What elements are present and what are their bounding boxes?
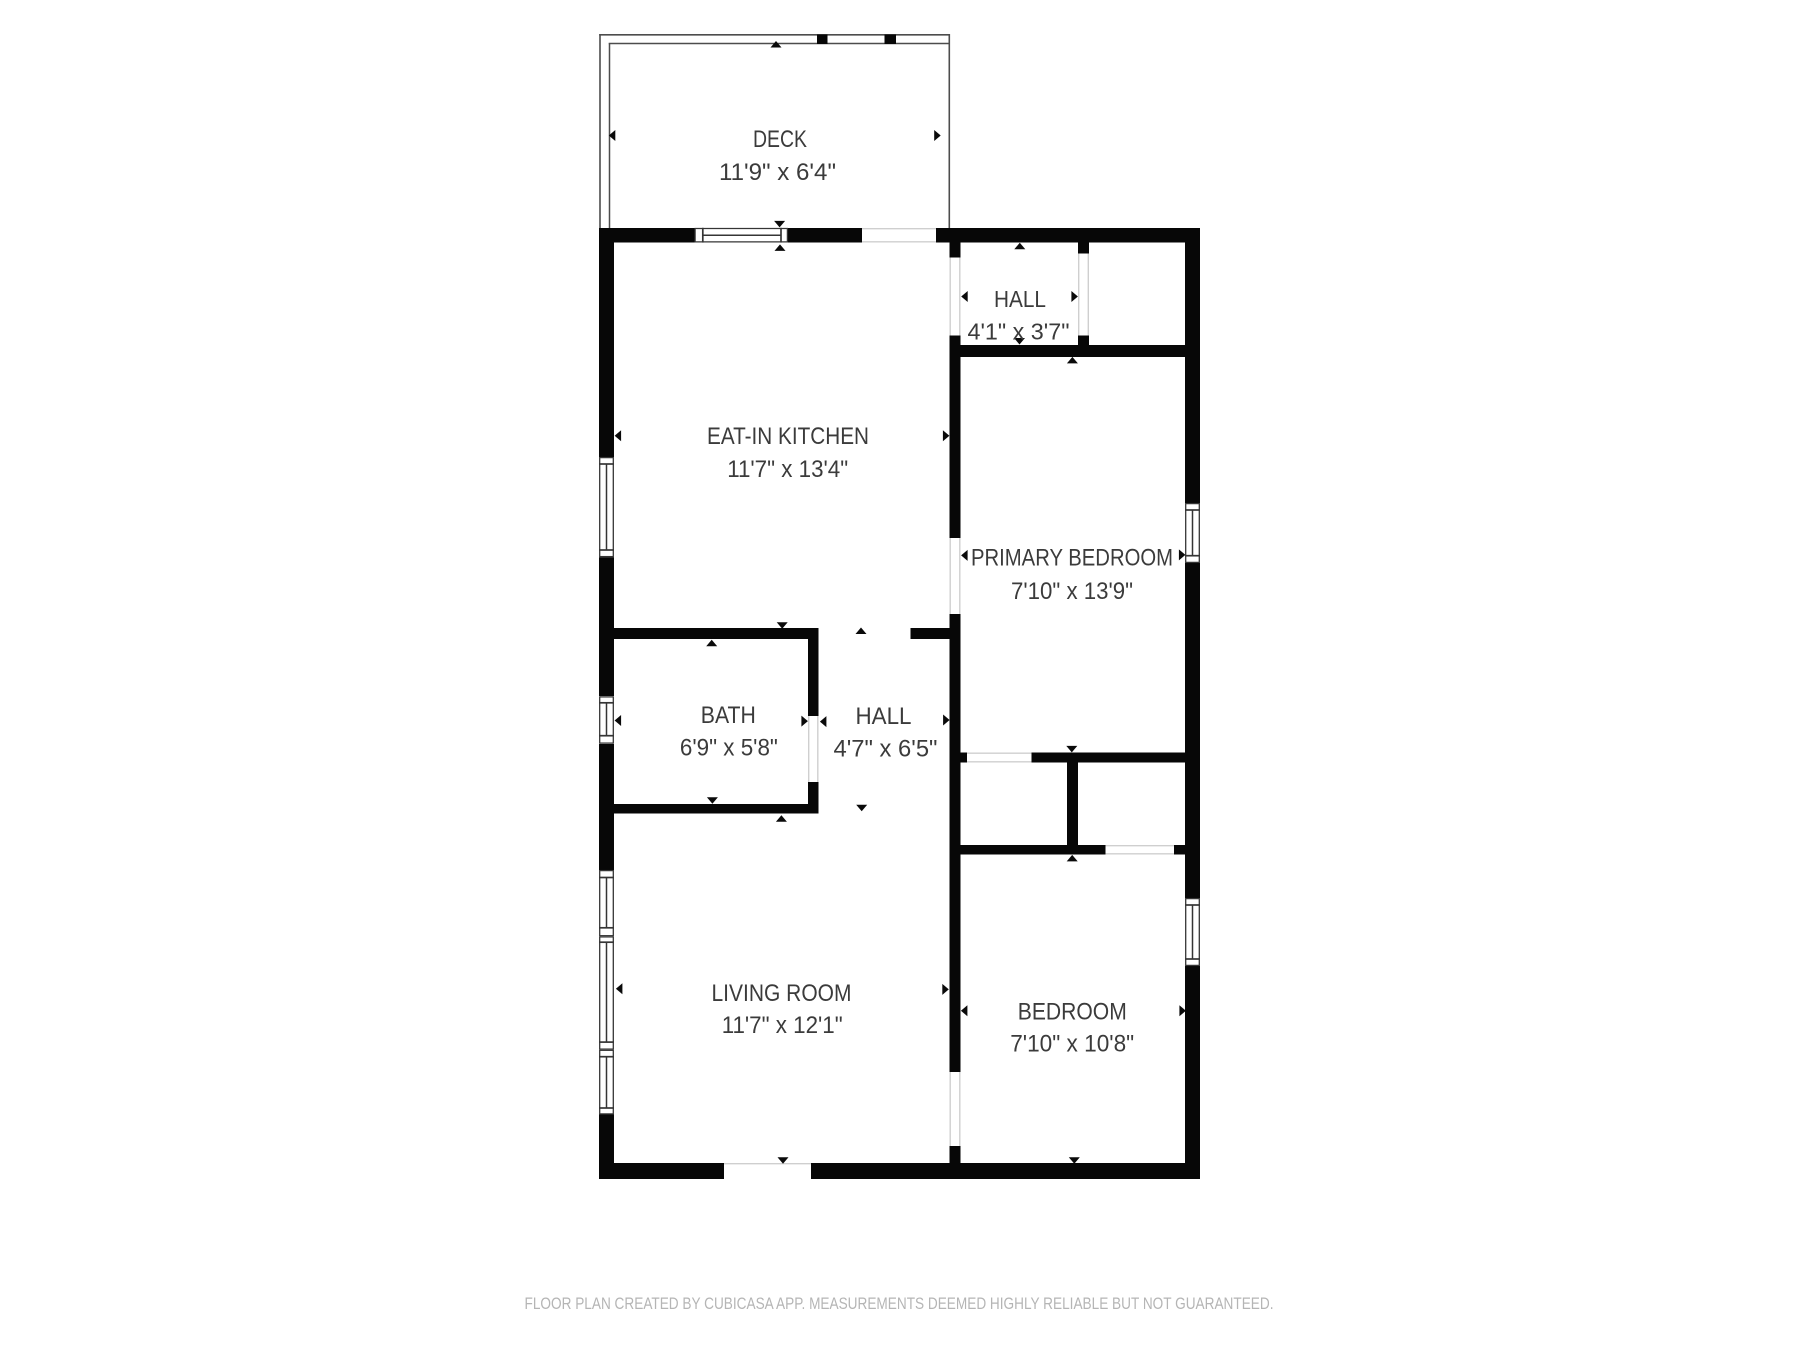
svg-text:DECK: DECK [753, 126, 807, 153]
svg-text:HALL: HALL [994, 286, 1046, 312]
svg-text:LIVING ROOM: LIVING ROOM [712, 980, 852, 1007]
svg-text:11'9" x 6'4": 11'9" x 6'4" [719, 159, 836, 186]
svg-text:7'10" x 13'9": 7'10" x 13'9" [1011, 578, 1133, 605]
svg-text:4'1" x 3'7": 4'1" x 3'7" [968, 319, 1070, 345]
svg-text:BEDROOM: BEDROOM [1018, 999, 1127, 1026]
svg-text:11'7" x 12'1": 11'7" x 12'1" [722, 1012, 843, 1039]
svg-text:FLOOR PLAN CREATED BY CUBICASA: FLOOR PLAN CREATED BY CUBICASA APP. MEAS… [525, 1294, 1274, 1313]
svg-text:6'9" x 5'8": 6'9" x 5'8" [680, 735, 778, 762]
svg-text:4'7" x 6'5": 4'7" x 6'5" [834, 736, 938, 763]
svg-text:7'10" x 10'8": 7'10" x 10'8" [1010, 1030, 1134, 1057]
svg-text:HALL: HALL [856, 703, 912, 730]
svg-text:EAT-IN KITCHEN: EAT-IN KITCHEN [707, 423, 869, 450]
svg-text:11'7" x 13'4": 11'7" x 13'4" [727, 456, 848, 483]
svg-text:BATH: BATH [701, 702, 756, 729]
svg-text:PRIMARY BEDROOM: PRIMARY BEDROOM [971, 544, 1173, 571]
